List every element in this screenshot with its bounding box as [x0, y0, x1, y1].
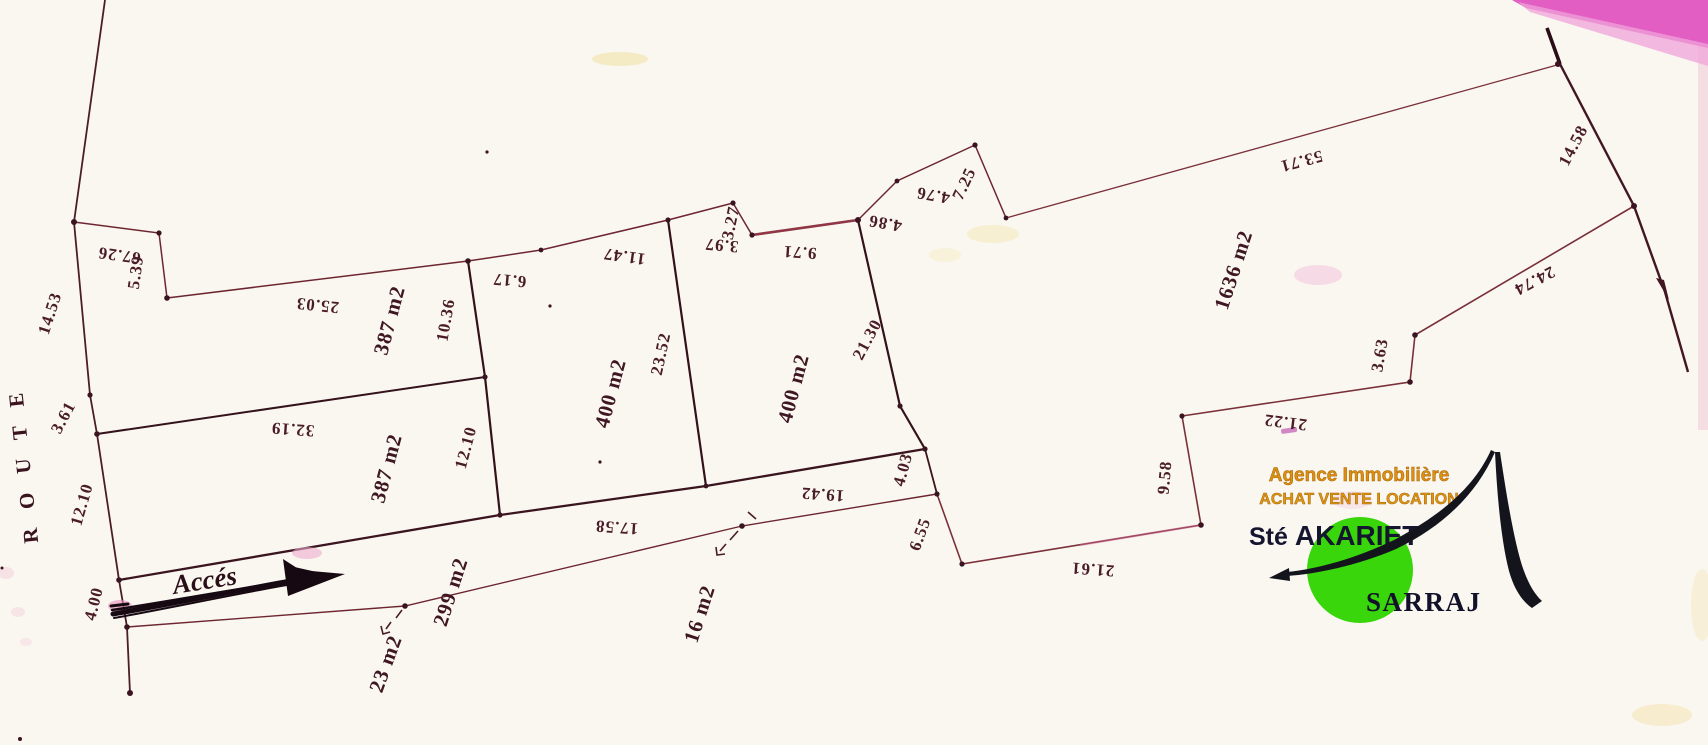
- svg-text:9.71: 9.71: [782, 242, 817, 263]
- svg-text:32.19: 32.19: [270, 419, 314, 441]
- svg-text:Agence Immobilière: Agence Immobilière: [1269, 465, 1450, 486]
- svg-text:SARRAJ: SARRAJ: [1366, 587, 1482, 617]
- svg-text:ACHAT VENTE LOCATION: ACHAT VENTE LOCATION: [1259, 491, 1458, 508]
- svg-text:19.42: 19.42: [800, 484, 844, 506]
- svg-text:17.58: 17.58: [594, 517, 638, 539]
- svg-text:3.97: 3.97: [704, 235, 739, 257]
- svg-text:21.61: 21.61: [1070, 559, 1114, 581]
- svg-text:6.17: 6.17: [492, 270, 527, 292]
- svg-text:9.58: 9.58: [1154, 460, 1176, 495]
